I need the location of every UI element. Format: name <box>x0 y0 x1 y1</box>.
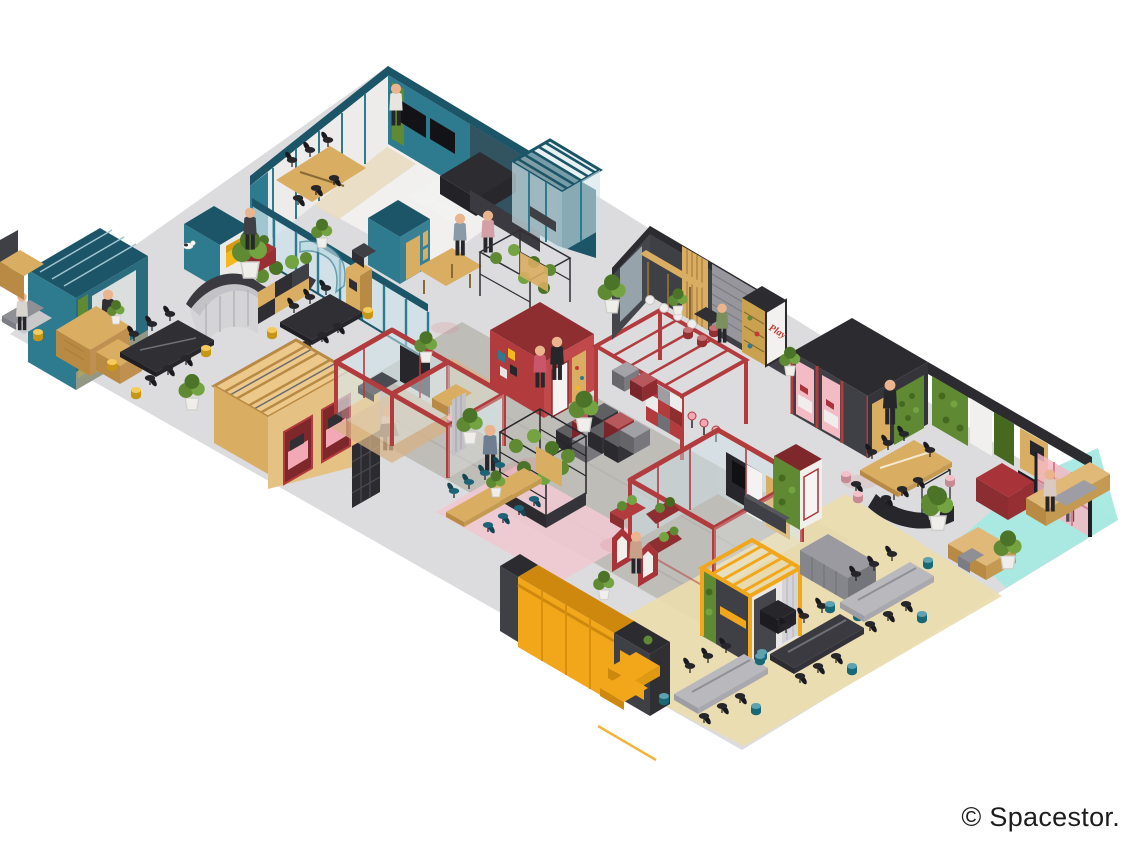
red-pouf <box>697 335 707 347</box>
yellow-stool <box>33 329 43 341</box>
red-pouf <box>683 327 693 339</box>
floorplan-illustration: Play <box>0 0 1140 855</box>
isometric-office-scene: Play <box>0 0 1140 855</box>
floor-accent-line <box>598 726 656 760</box>
art-cabinet: Play <box>742 286 788 366</box>
copyright: © Spacestor. <box>961 802 1120 833</box>
